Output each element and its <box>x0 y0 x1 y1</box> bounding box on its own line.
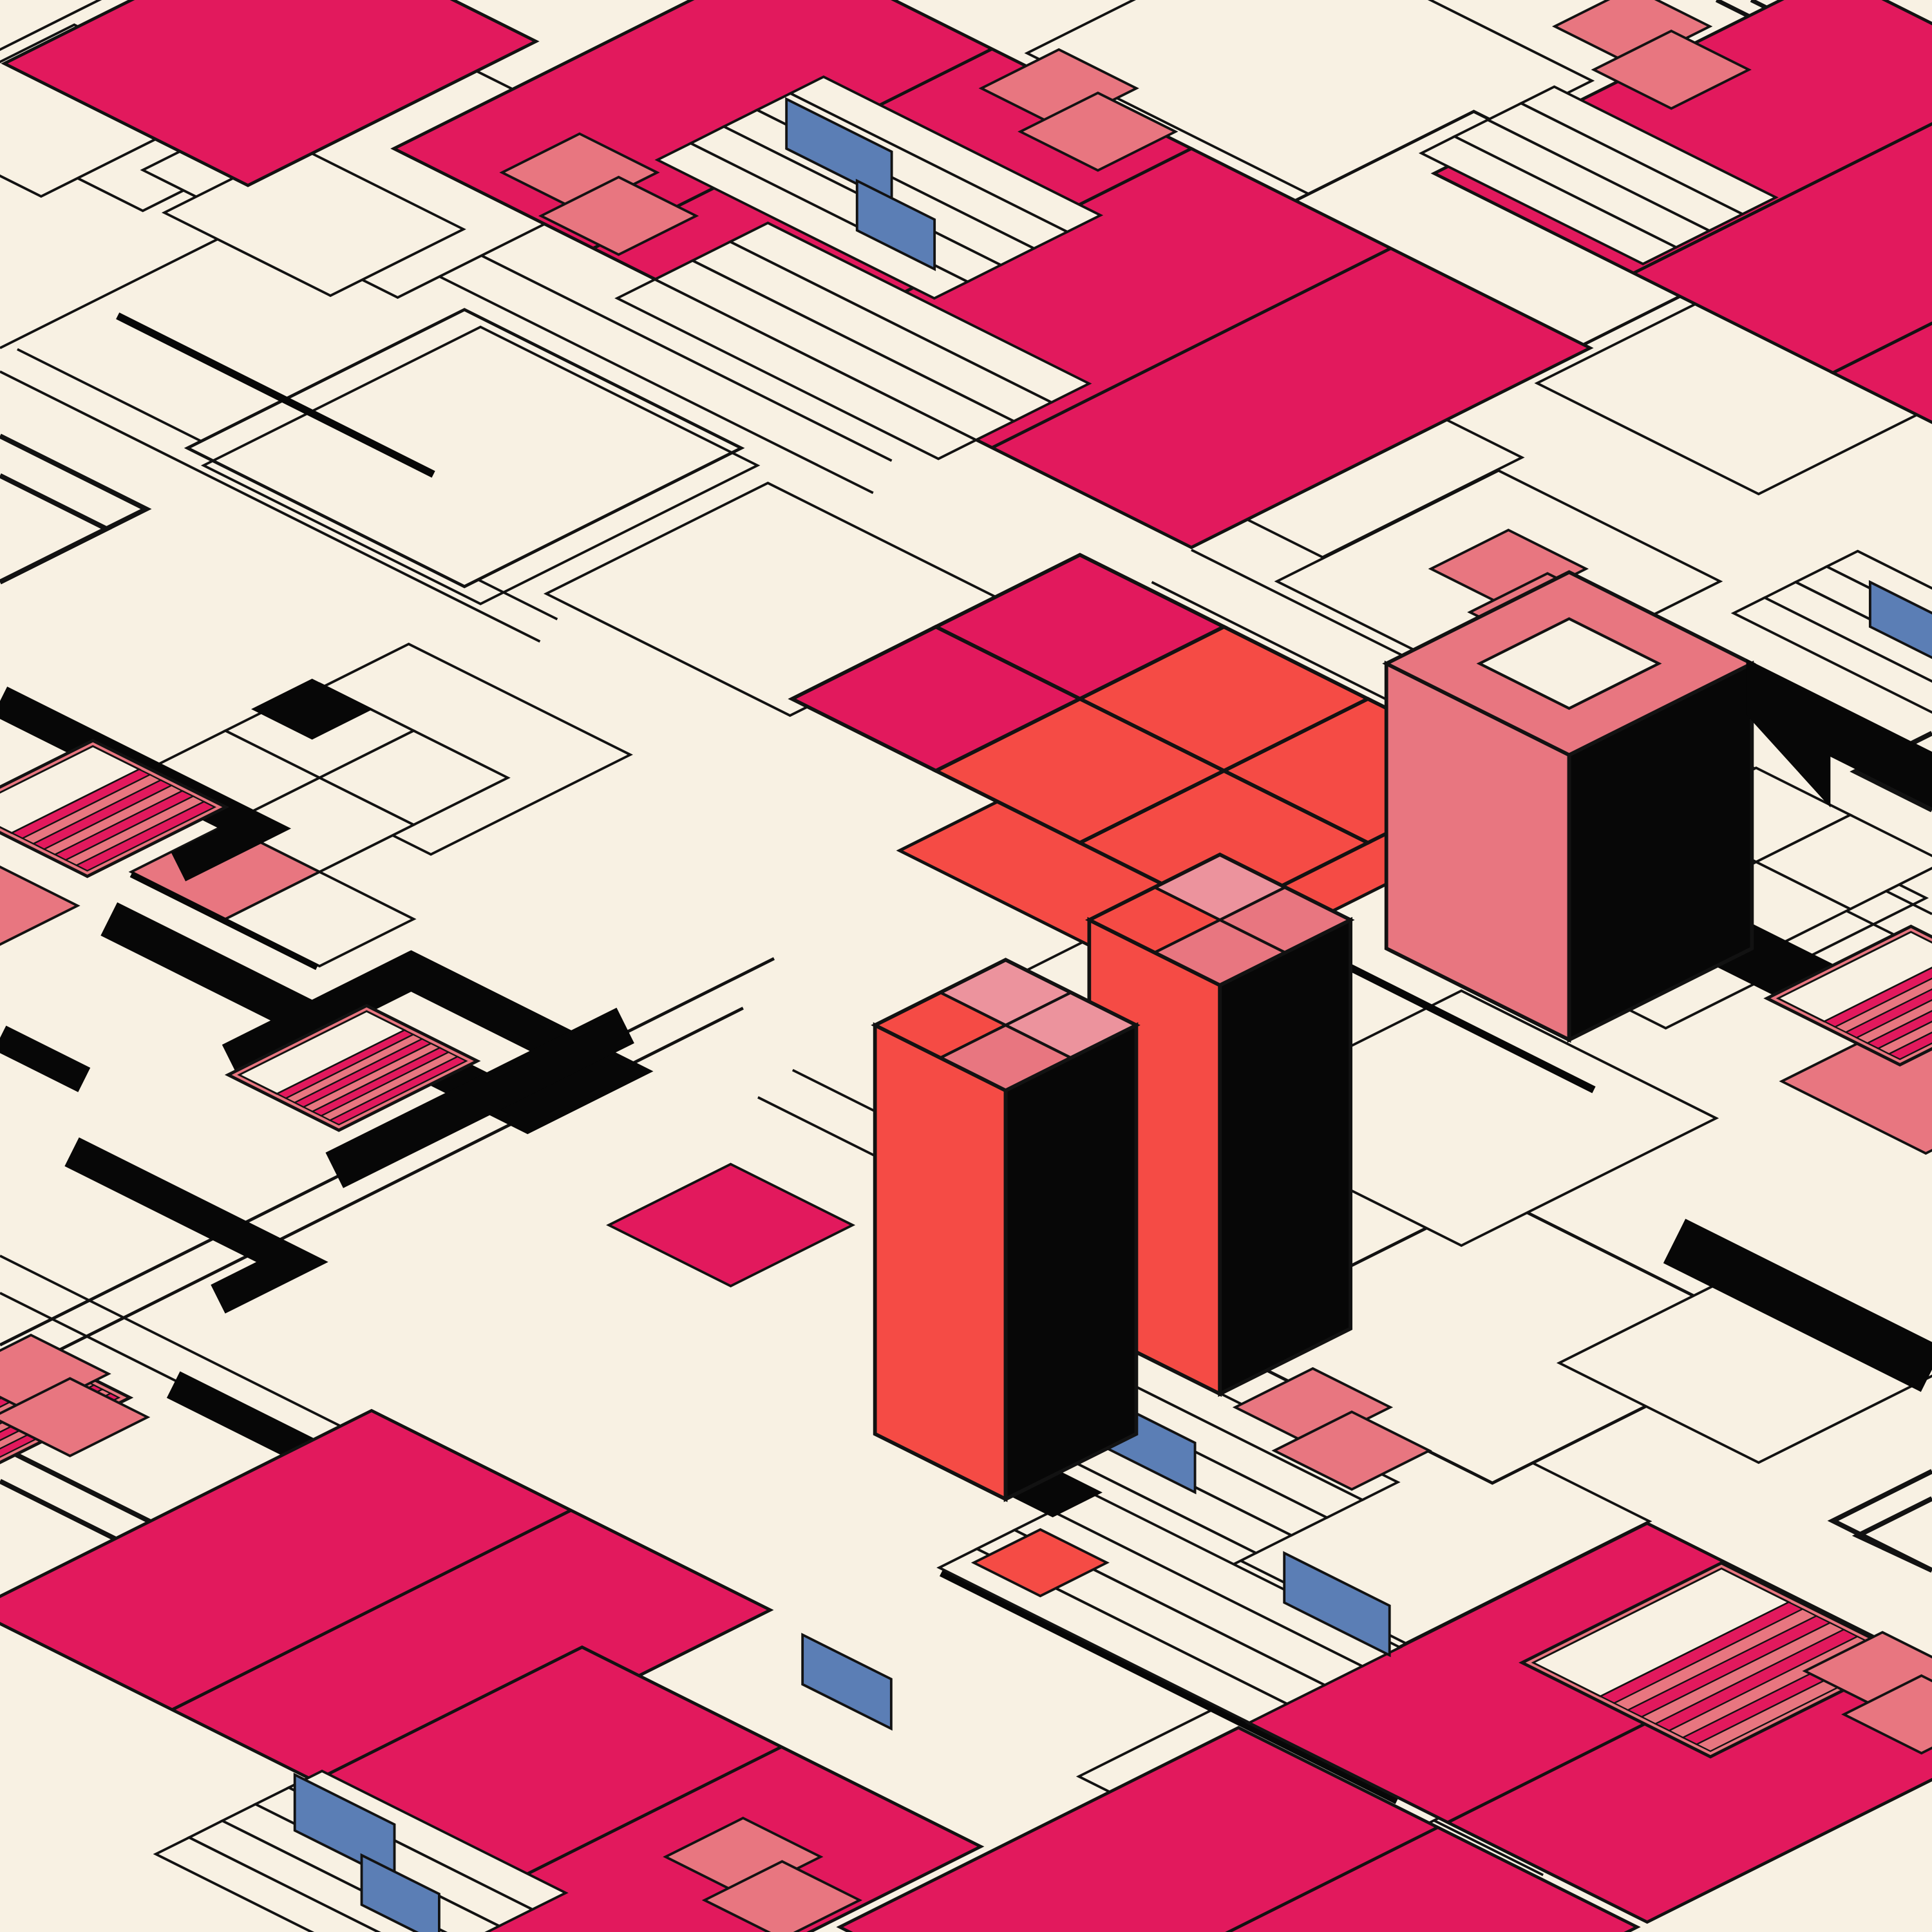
pattern-canvas <box>0 0 1932 1932</box>
isometric-artwork <box>0 0 1932 1932</box>
tower-left-right-face <box>1006 1025 1137 1499</box>
tower-left-left-face <box>875 1025 1006 1499</box>
tower-right-right-face <box>1220 920 1350 1394</box>
